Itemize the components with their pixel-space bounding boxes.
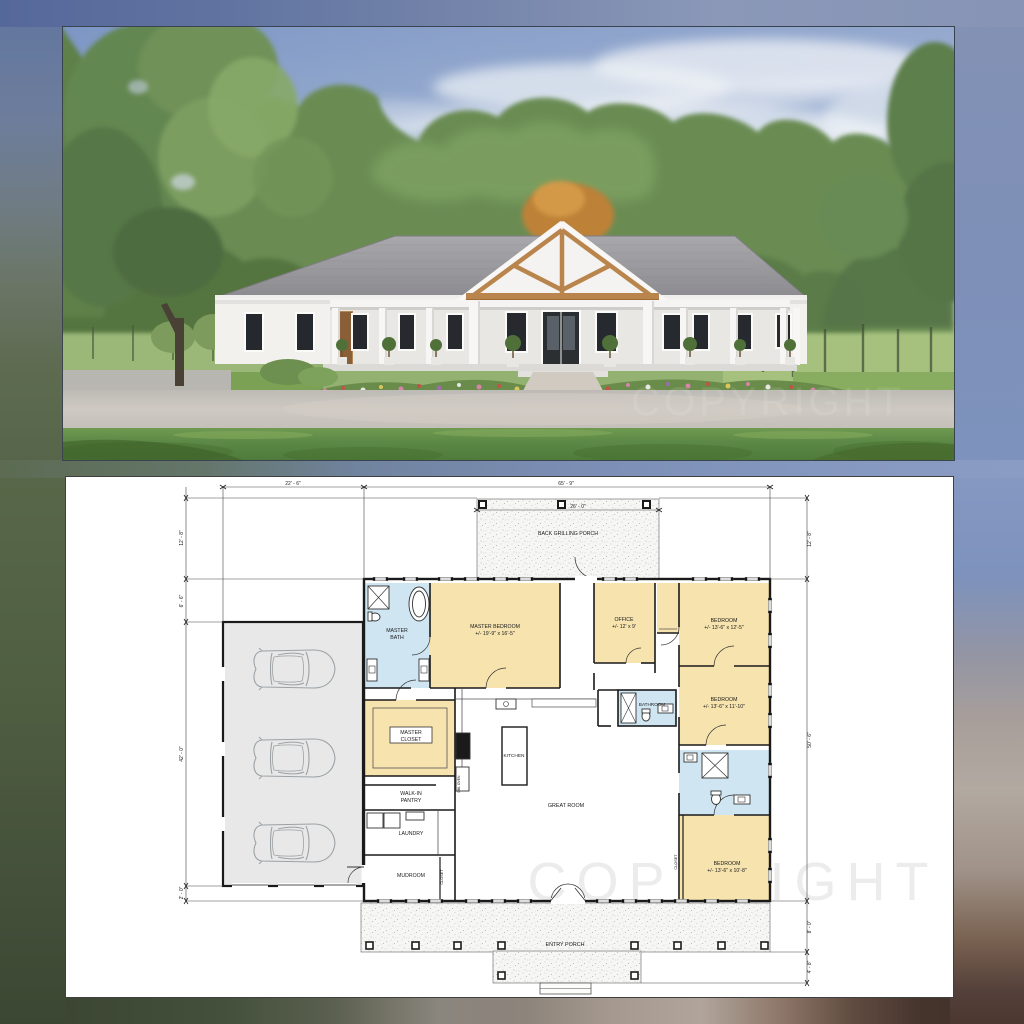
svg-text:BATH: BATH <box>390 635 404 641</box>
svg-text:MASTER: MASTER <box>400 730 422 736</box>
svg-text:65' - 9": 65' - 9" <box>558 481 574 487</box>
svg-text:MASTER BEDROOM: MASTER BEDROOM <box>470 624 520 630</box>
svg-text:KITCHEN: KITCHEN <box>503 753 525 759</box>
svg-text:50' - 6": 50' - 6" <box>807 732 813 748</box>
svg-text:12' - 8": 12' - 8" <box>807 531 813 547</box>
svg-text:MUDROOM: MUDROOM <box>397 873 425 879</box>
svg-text:4' - 8": 4' - 8" <box>807 960 813 973</box>
svg-text:+/- 12' x 9': +/- 12' x 9' <box>612 624 636 630</box>
svg-text:COPYRIGHT: COPYRIGHT <box>631 380 905 424</box>
svg-text:12' - 8": 12' - 8" <box>179 530 185 546</box>
svg-text:LAUNDRY: LAUNDRY <box>399 831 424 837</box>
svg-text:OFFICE: OFFICE <box>614 617 634 623</box>
svg-text:+/- 13'-6" x 11'-10": +/- 13'-6" x 11'-10" <box>703 704 745 710</box>
svg-text:26' - 0": 26' - 0" <box>570 504 586 510</box>
svg-text:CLOSET: CLOSET <box>401 737 423 743</box>
svg-text:8' - 0": 8' - 0" <box>807 920 813 933</box>
svg-text:PANTRY: PANTRY <box>401 798 422 804</box>
svg-text:BACK GRILLING PORCH: BACK GRILLING PORCH <box>538 531 598 537</box>
svg-text:+/- 13'-6" x 12'-5": +/- 13'-6" x 12'-5" <box>704 625 744 631</box>
svg-text:+/- 13'-6" x 10'-8": +/- 13'-6" x 10'-8" <box>707 868 747 874</box>
svg-text:6' - 6": 6' - 6" <box>179 594 185 607</box>
svg-text:DBL OVEN: DBL OVEN <box>457 775 461 793</box>
svg-text:BEDROOM: BEDROOM <box>714 861 741 867</box>
svg-text:22' - 6": 22' - 6" <box>285 481 301 487</box>
svg-text:CLOSET: CLOSET <box>674 854 678 870</box>
svg-text:ENTRY PORCH: ENTRY PORCH <box>545 942 584 948</box>
svg-text:WALK-IN: WALK-IN <box>400 791 422 797</box>
svg-text:42' - 0": 42' - 0" <box>179 746 185 762</box>
svg-text:+/- 19'-9" x 16'-5": +/- 19'-9" x 16'-5" <box>475 631 515 637</box>
svg-text:BATHROOM: BATHROOM <box>639 702 665 707</box>
svg-text:MASTER: MASTER <box>386 628 408 634</box>
svg-text:GREAT ROOM: GREAT ROOM <box>548 803 585 809</box>
svg-text:2' - 0": 2' - 0" <box>179 886 185 899</box>
svg-text:BEDROOM: BEDROOM <box>711 618 738 624</box>
svg-text:BEDROOM: BEDROOM <box>711 697 738 703</box>
svg-text:CLOSET: CLOSET <box>440 869 444 885</box>
